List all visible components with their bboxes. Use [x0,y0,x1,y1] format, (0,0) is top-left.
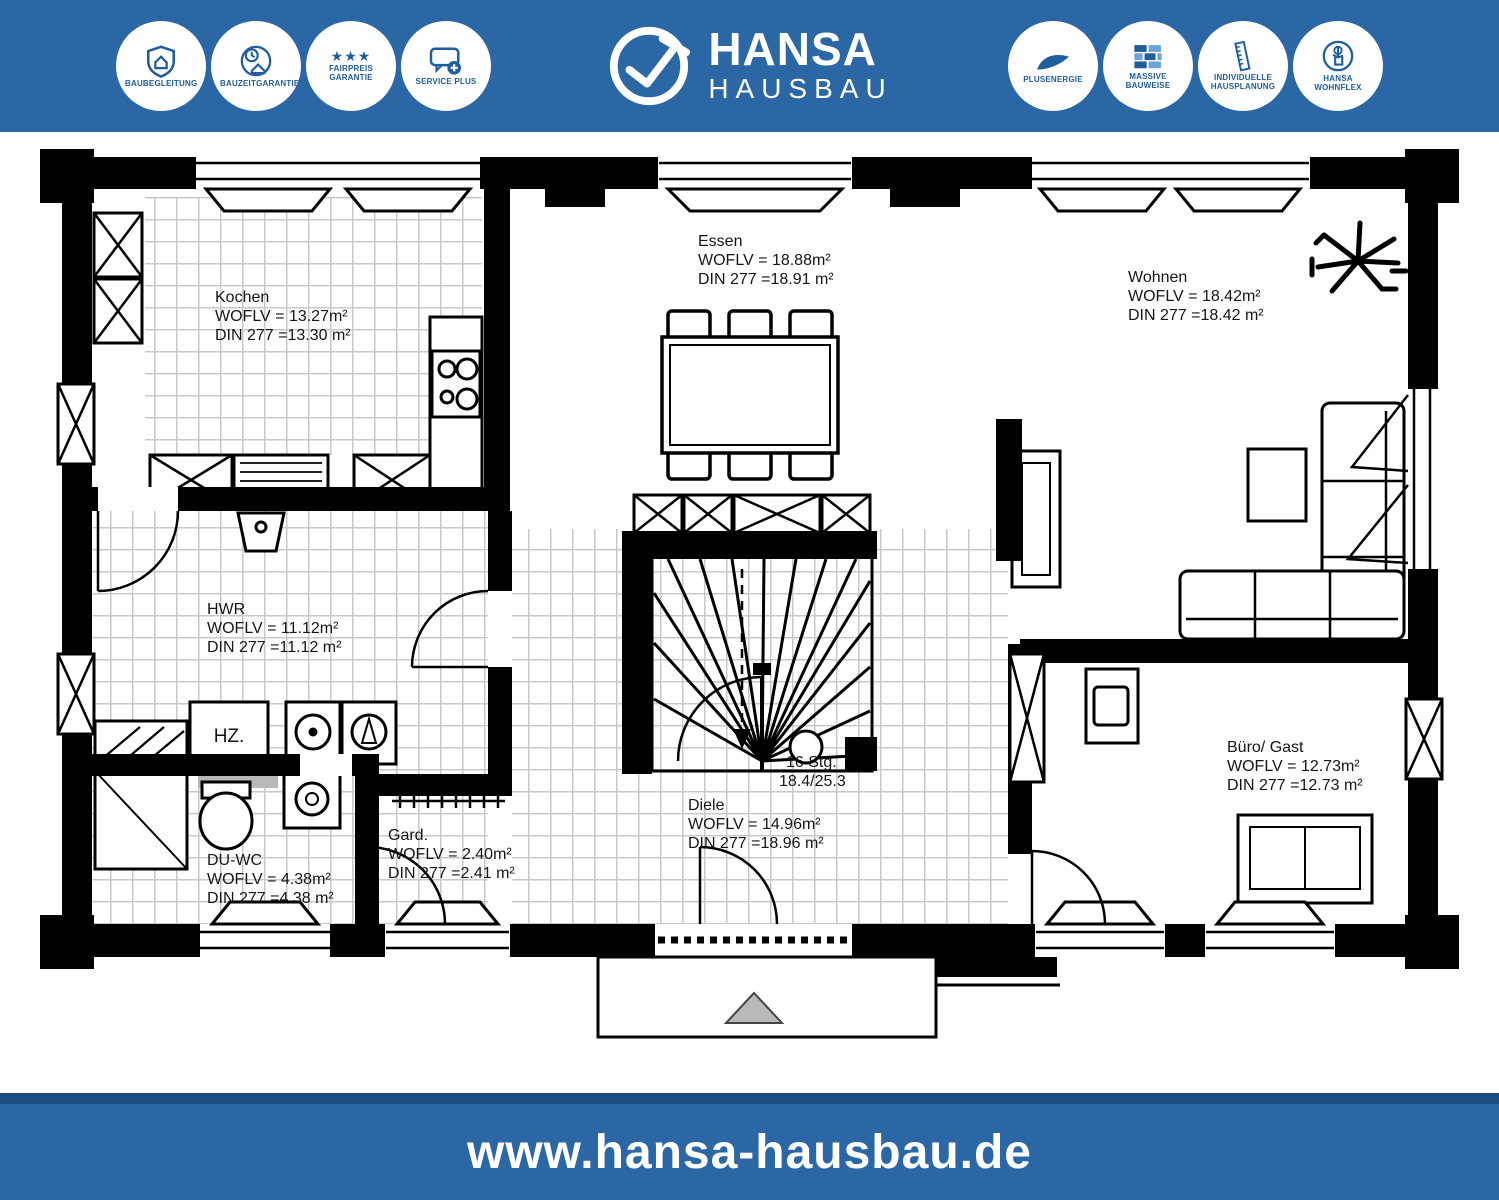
office-shaft [1010,654,1044,782]
badge-bauzeitgarantie: BAUZEITGARANTIE [211,21,301,111]
room-label: Büro/ Gast [1227,739,1304,756]
footer-divider [0,1093,1499,1104]
clock-house-icon [239,44,273,78]
svg-text:DIN 277 =18.91 m²: DIN 277 =18.91 m² [698,271,834,288]
room-label: HWR [207,601,245,618]
room-label: Kochen [215,289,269,306]
svg-text:WOFLV = 4.38m²: WOFLV = 4.38m² [207,871,331,888]
website-url: www.hansa-hausbau.de [467,1125,1032,1180]
badge-fairpreis-garantie: ★★★ FAIRPREIS GARANTIE [306,21,396,111]
svg-text:DIN 277 =11.12 m²: DIN 277 =11.12 m² [207,639,342,656]
circle-check-logo-icon [606,23,692,109]
badge-baubegleitung: BAUBEGLEITUNG [116,21,206,111]
energy-swoosh-icon [1034,48,1072,74]
svg-text:DIN 277 =13.30 m²: DIN 277 =13.30 m² [215,327,351,344]
room-label: Diele [688,797,725,814]
right-badges: PLUSENERGIE MASSIVE BAUWEISE INDIVIDUELL… [1008,21,1383,111]
logo-subtitle: HAUSBAU [708,72,892,106]
badge-label: BAUZEITGARANTIE [220,80,292,89]
stairs-dims: 18.4/25.3 [779,773,846,790]
left-badges: BAUBEGLEITUNG BAUZEITGARANTIE ★★★ FAIRPR… [116,21,491,111]
badge-massive-bauweise: MASSIVE BAUWEISE [1103,21,1193,111]
svg-text:DIN 277 =4.38 m²: DIN 277 =4.38 m² [207,890,334,907]
svg-text:WOFLV = 14.96m²: WOFLV = 14.96m² [688,816,821,833]
svg-text:DIN 277 =18.96 m²: DIN 277 =18.96 m² [688,835,824,852]
room-label: Essen [698,233,742,250]
badge-label: PLUSENERGIE [1023,76,1083,85]
svg-text:WOFLV = 12.73m²: WOFLV = 12.73m² [1227,758,1360,775]
coffee-table [1248,449,1306,521]
dining-table [662,337,838,453]
speech-bubble-plus-icon [428,46,464,76]
room-label: DU-WC [207,852,262,869]
svg-text:WOFLV = 18.42m²: WOFLV = 18.42m² [1128,288,1261,305]
heating-label: HZ. [214,726,245,747]
badge-label: SERVICE PLUS [416,78,477,87]
floor-plan: Kochen WOFLV = 13.27m² DIN 277 =13.30 m²… [0,132,1499,1093]
badge-individuelle-hausplanung: INDIVIDUELLE HAUSPLANUNG [1198,21,1288,111]
toilet-icon [200,793,252,849]
logo-text: HANSA HAUSBAU [708,26,892,106]
badge-label: MASSIVE BAUWEISE [1112,73,1184,91]
badge-label: HANSA WOHNFLEX [1302,75,1374,93]
star-seal-icon: ★★★ [331,49,372,63]
hall-closets [634,495,870,533]
svg-text:DIN 277 =18.42 m²: DIN 277 =18.42 m² [1128,307,1264,324]
hansa-hausbau-logo: HANSA HAUSBAU [606,23,892,109]
brick-wall-icon [1131,41,1165,71]
svg-text:WOFLV = 18.88m²: WOFLV = 18.88m² [698,252,831,269]
badge-label: BAUBEGLEITUNG [125,80,197,89]
badge-plusenergie: PLUSENERGIE [1008,21,1098,111]
header-bar: BAUBEGLEITUNG BAUZEITGARANTIE ★★★ FAIRPR… [0,0,1499,132]
stairs-label: 16 Stg. [786,754,837,771]
desk-chair [1094,687,1128,725]
badge-hansa-wohnflex: HANSA WOHNFLEX [1293,21,1383,111]
badge-label: INDIVIDUELLE HAUSPLANUNG [1207,74,1279,92]
svg-text:DIN 277 =12.73 m²: DIN 277 =12.73 m² [1227,777,1363,794]
svg-text:WOFLV = 13.27m²: WOFLV = 13.27m² [215,308,348,325]
badge-label: FAIRPREIS GARANTIE [315,65,387,83]
ruler-icon [1228,40,1258,72]
footer-bar: www.hansa-hausbau.de [0,1104,1499,1200]
shield-house-icon [144,44,178,78]
room-label: Gard. [388,827,428,844]
svg-text:WOFLV = 11.12m²: WOFLV = 11.12m² [207,620,339,637]
wash-basin-icon [284,772,340,828]
svg-text:WOFLV = 2.40m²: WOFLV = 2.40m² [388,846,512,863]
room-label: Wohnen [1128,269,1187,286]
badge-service-plus: SERVICE PLUS [401,21,491,111]
hand-click-icon [1321,39,1355,73]
dining-set [662,311,838,479]
logo-title: HANSA [708,26,892,72]
svg-text:DIN 277 =2.41 m²: DIN 277 =2.41 m² [388,865,515,882]
